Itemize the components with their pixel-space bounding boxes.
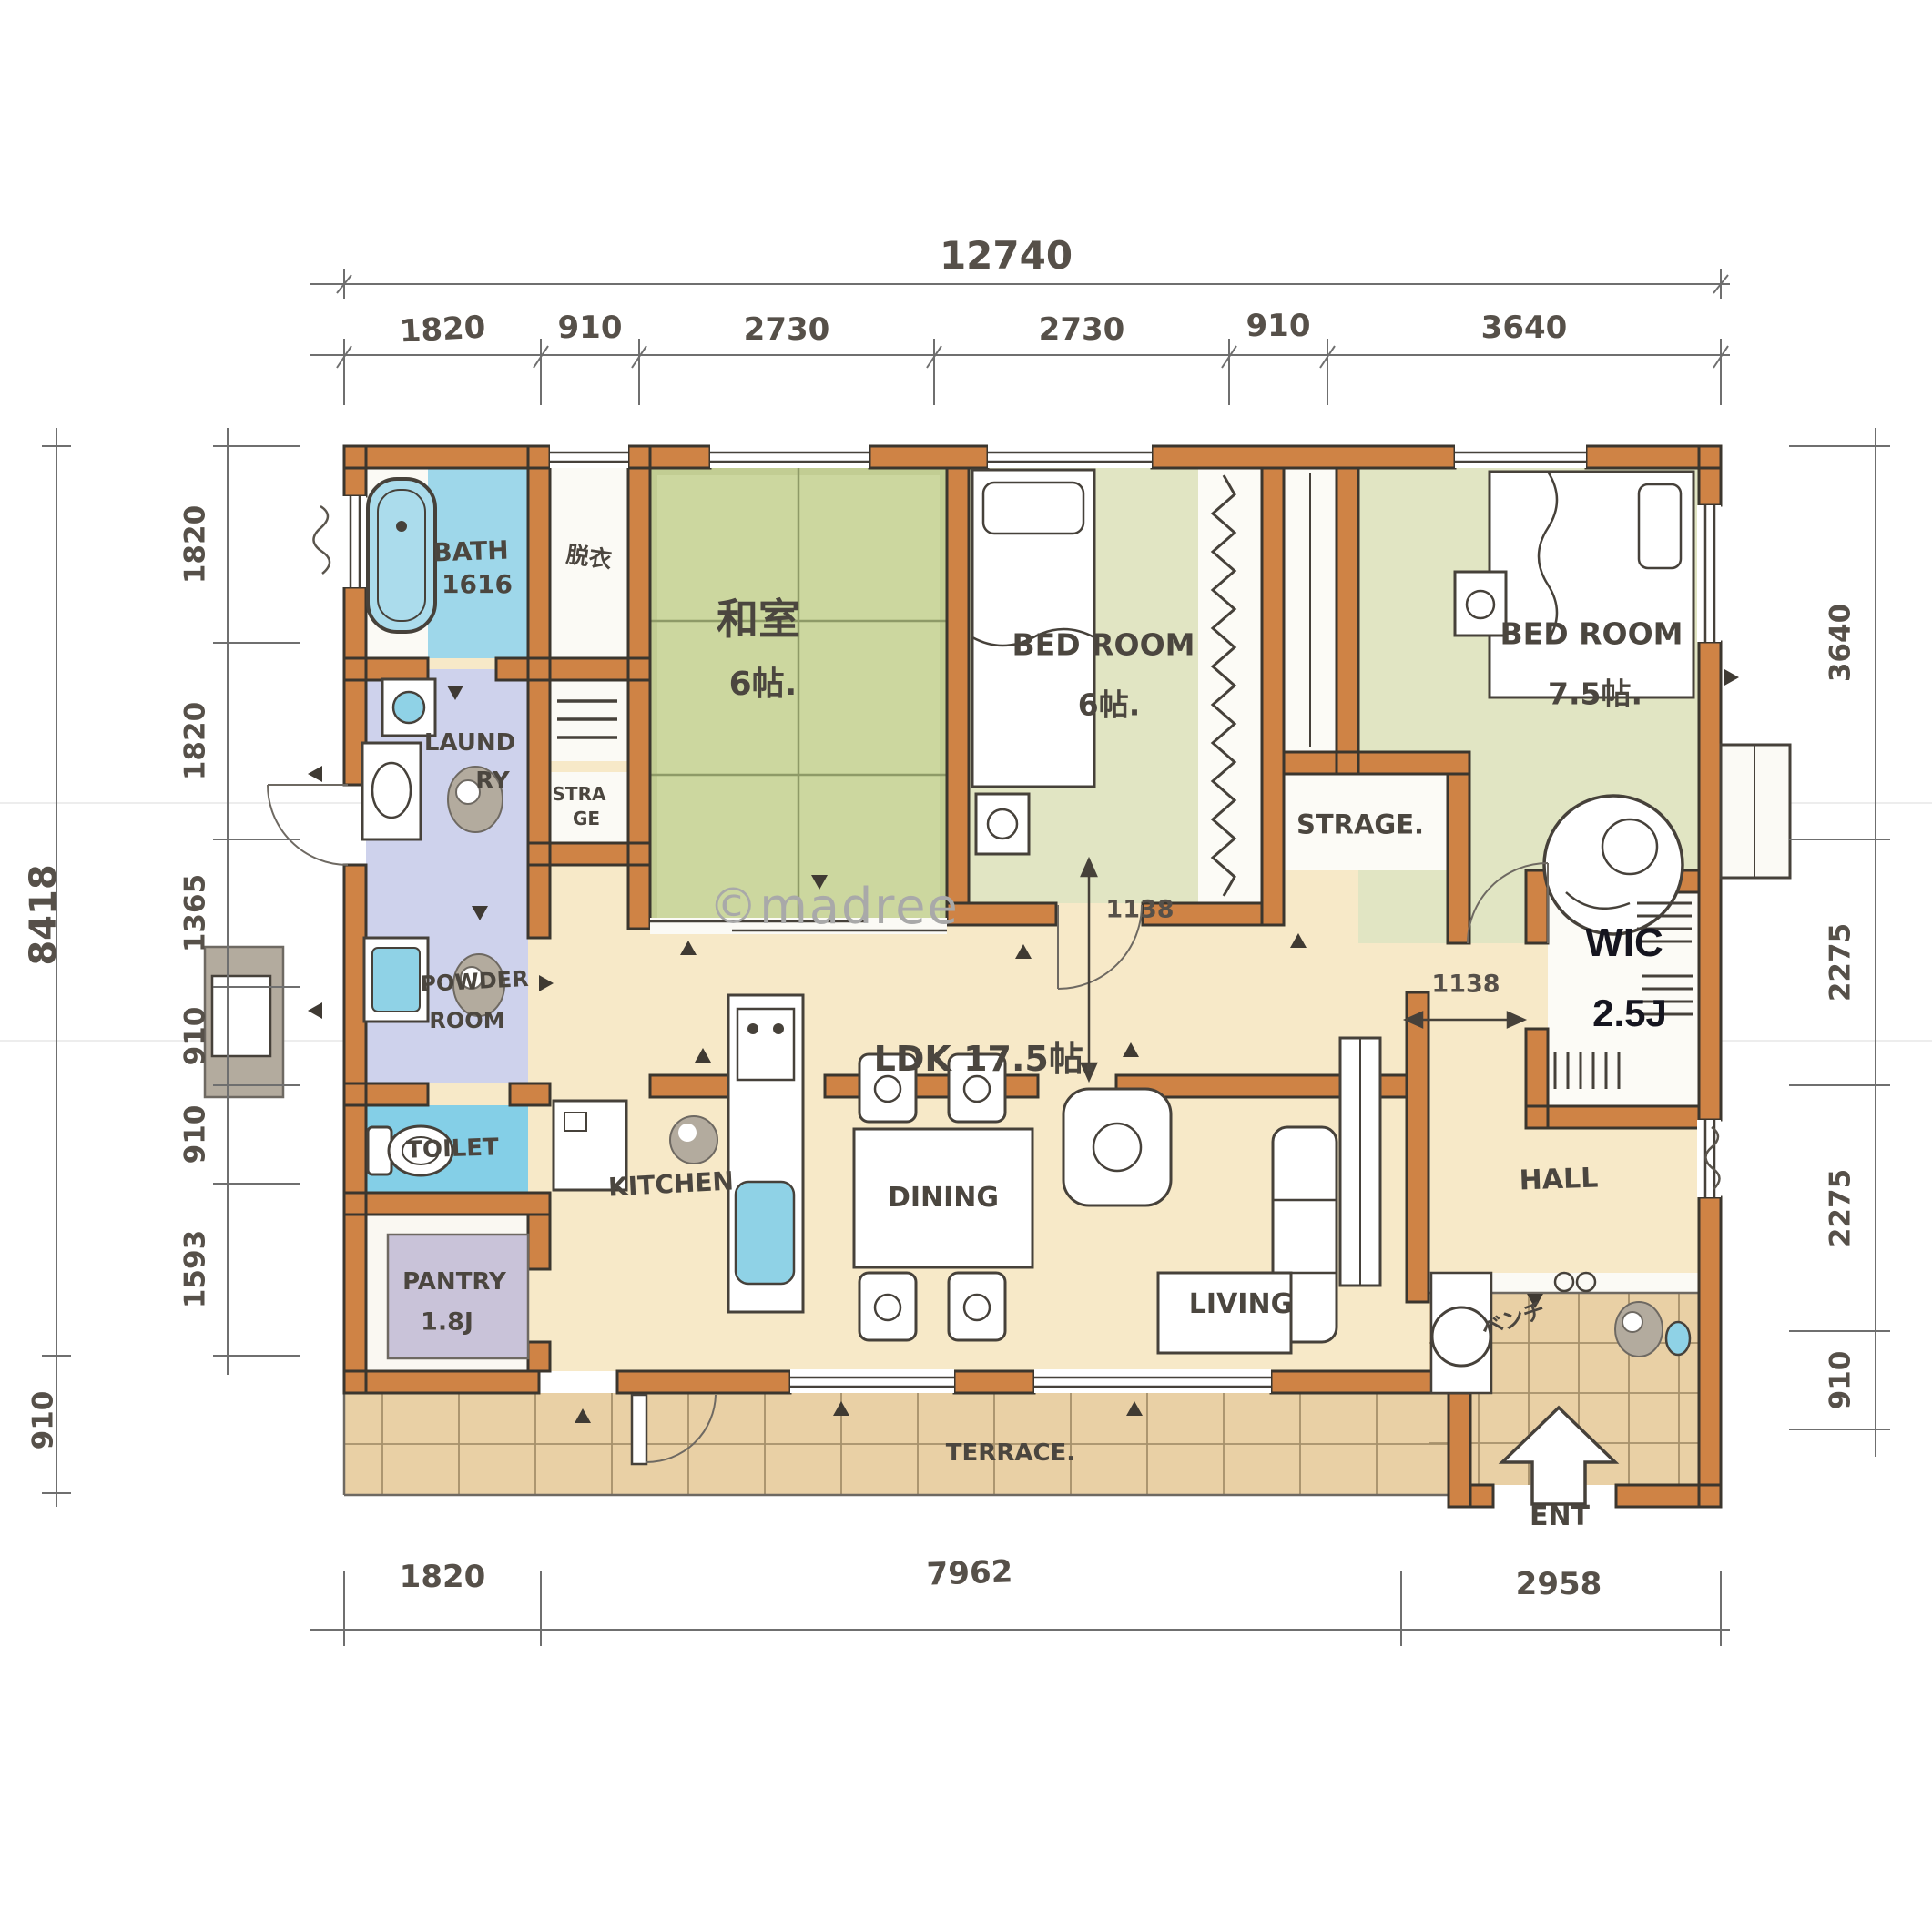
dim-top-6: 3640 [1481,312,1568,343]
room-label-entrance: ENT [1530,1503,1590,1530]
room-label-laundry-1: LAUND [424,731,515,755]
dim-left-5: 910 [182,1105,210,1164]
dim-left-3: 1365 [182,874,210,952]
room-label-washitsu-size: 6帖. [729,668,798,701]
room-label-bedroom-center: BED ROOM [1012,630,1195,660]
round-chair [1544,796,1683,934]
dim-top-1: 1820 [399,312,486,348]
room-label-storage-small-2: GE [573,809,600,828]
pantry-shelf [388,1235,528,1358]
dim-bottom-1: 1820 [400,1561,486,1592]
laundry-counter [362,743,421,839]
dim-top-4: 2730 [1039,314,1125,345]
room-label-bath: BATH [432,538,509,566]
dim-right-1: 3640 [1827,604,1856,682]
dim-left-total: 8418 [25,864,62,965]
room-label-pantry: PANTRY [402,1270,506,1294]
dim-right-4: 910 [1827,1351,1856,1410]
watermark: ©madree [708,882,959,931]
dim-left-4: 910 [182,1007,210,1066]
room-label-storage-small-1: STRA [553,785,606,803]
room-label-bedroom-right: BED ROOM [1500,619,1683,649]
room-label-bedroom-right-size: 7.5帖. [1548,679,1642,709]
room-label-laundry-2: RY [475,769,509,793]
armchair [1063,1089,1171,1205]
room-label-pantry-size: 1.8J [421,1310,473,1335]
dim-top-2: 910 [558,312,623,343]
room-label-powder-1: POWDER [420,968,529,995]
room-label-bedroom-center-size: 6帖. [1078,690,1141,720]
room-label-terrace: TERRACE. [946,1441,1075,1465]
room-label-living: LIVING [1189,1291,1293,1318]
dim-bottom-2: 7962 [926,1556,1013,1590]
room-label-washitsu: 和室 [717,598,800,640]
room-label-toilet: TOILET [406,1135,499,1163]
stove [737,1009,794,1080]
dim-right-2: 2275 [1827,923,1856,1002]
room-label-dining: DINING [888,1185,999,1212]
room-label-powder-2: ROOM [429,1010,504,1032]
floor-plan-canvas [0,0,1932,1932]
nightstand-right [1455,572,1506,636]
dim-left-bottom-910: 910 [30,1391,58,1450]
dim-top-5: 910 [1246,310,1311,341]
dim-top-3: 2730 [744,314,830,345]
room-label-wic-size: 2.5J [1592,994,1667,1032]
room-label-hall: HALL [1519,1164,1599,1195]
room-label-dressing: 脱衣 [564,543,613,572]
room-label-kitchen: KITCHEN [607,1168,734,1200]
room-label-storage-center: STRAGE. [1296,812,1424,839]
dim-left-1: 1820 [182,505,210,584]
room-label-wic: WIC [1585,923,1663,963]
dim-interior-1138-b: 1138 [1431,972,1500,997]
dim-right-3: 2275 [1827,1169,1856,1247]
dim-top-total: 12740 [940,237,1073,275]
dim-bottom-3: 2958 [1516,1569,1602,1600]
floor-plan-page: 12740 1820 910 2730 2730 910 3640 8418 1… [0,0,1932,1932]
dim-left-6: 1593 [182,1230,210,1308]
dim-left-2: 1820 [182,702,210,780]
nightstand-center [976,794,1029,854]
room-label-ldk: LDK 17.5帖. [874,1042,1097,1076]
room-label-bath-size: 1616 [442,572,513,597]
dim-interior-1138-a: 1138 [1105,898,1174,922]
kitchen-sink [736,1182,794,1284]
